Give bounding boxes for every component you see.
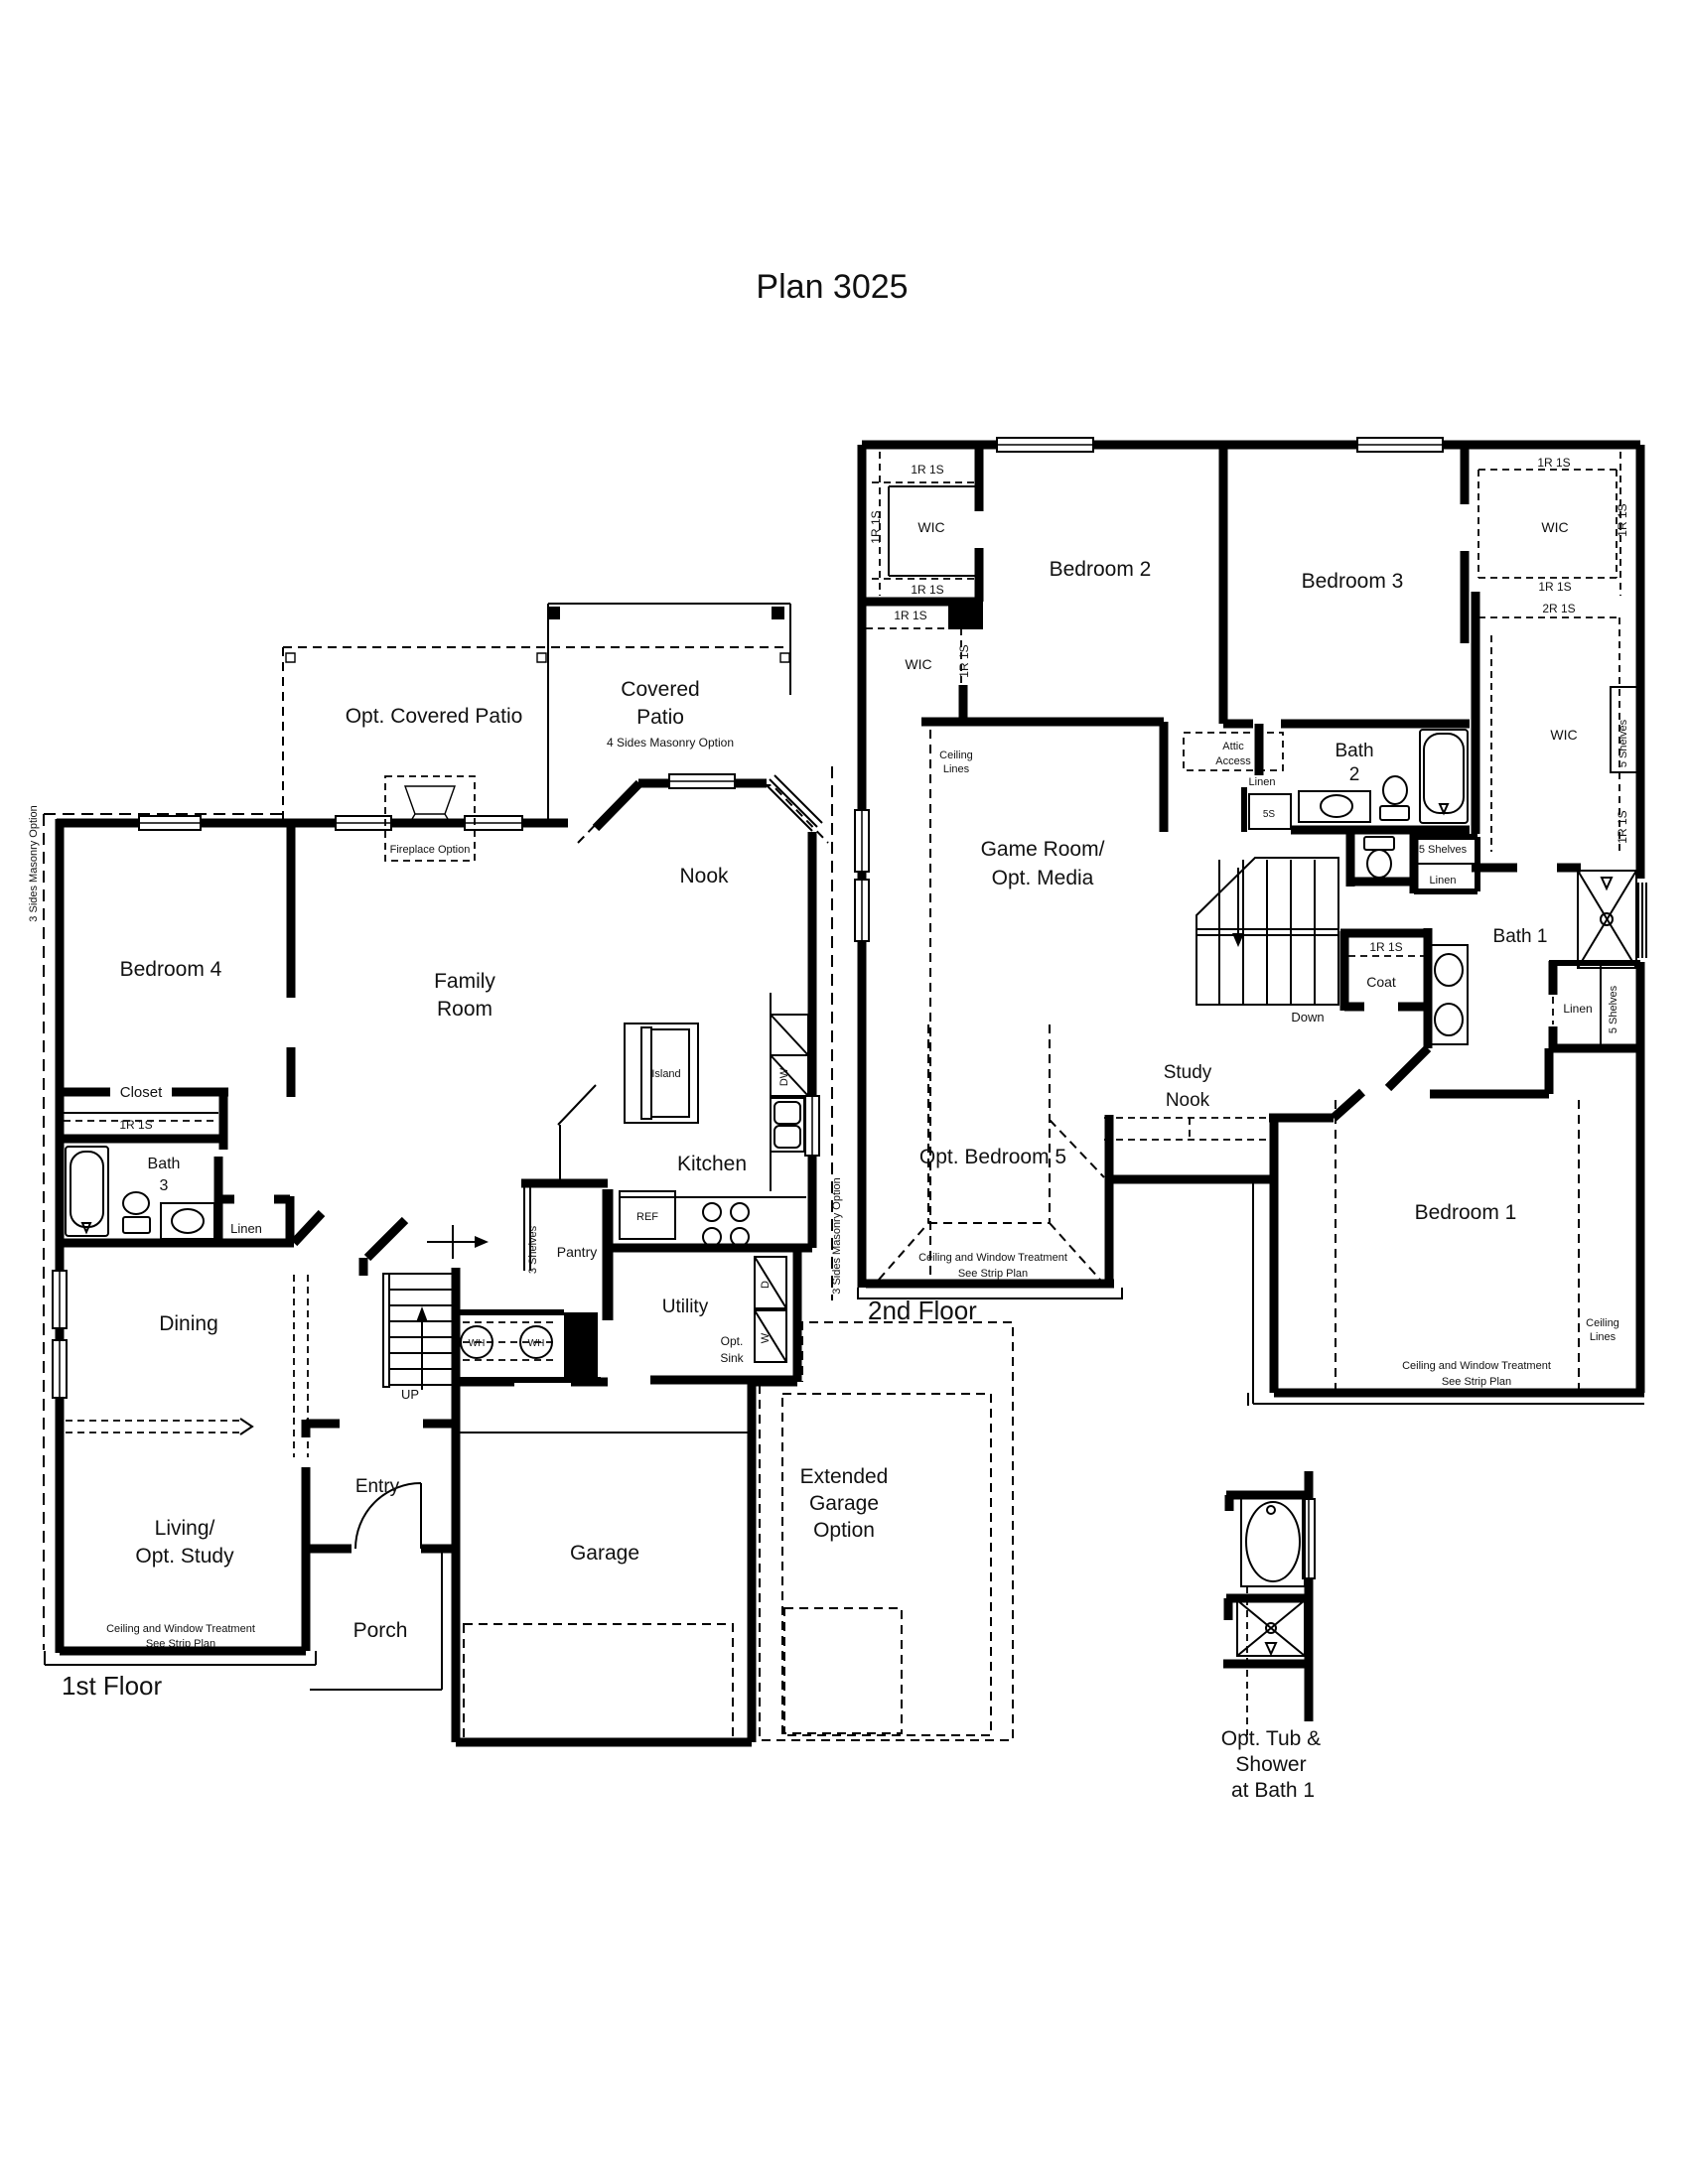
opt-tub-shower-detail: Opt. Tub & Shower at Bath 1 (1221, 1471, 1321, 1802)
vanity-icon (1430, 945, 1468, 1044)
label-bath1: Bath 1 (1493, 926, 1548, 947)
label-closet: Closet (120, 1084, 163, 1101)
label-bedroom-1: Bedroom 1 (1415, 1201, 1517, 1224)
label-bath3-1: Bath (148, 1156, 181, 1172)
utility-washer-dryer (755, 1257, 786, 1362)
dining-niche-arrow-lines (66, 1421, 240, 1433)
label-attic-access-1: Attic (1222, 741, 1244, 752)
label-4-sides-masonry: 4 Sides Masonry Option (607, 736, 734, 750)
label-covered-patio-2: Patio (636, 706, 684, 729)
label-entry: Entry (355, 1476, 400, 1497)
label-1st-floor: 1st Floor (62, 1671, 162, 1701)
bath1-fixtures (1430, 871, 1636, 1044)
tub-surround-icon (1241, 1495, 1305, 1586)
label-nook: Nook (679, 865, 729, 887)
tall-wic-shelf-unit (1414, 687, 1638, 1046)
label-bedroom-4: Bedroom 4 (120, 958, 222, 981)
label-washer: W (760, 1332, 772, 1343)
label-treatment-br5-1: Ceiling and Window Treatment (918, 1252, 1067, 1264)
label-dryer: D (760, 1281, 772, 1289)
label-island: Island (651, 1068, 680, 1080)
stairs-up (383, 1225, 453, 1387)
label-bath3-2: 3 (160, 1177, 169, 1194)
label-wic-4: WIC (1550, 727, 1577, 743)
label-opt-covered-patio: Opt. Covered Patio (346, 705, 523, 728)
kitchen-counters (558, 993, 808, 1246)
patio-post (547, 607, 560, 619)
label-wh-2: WH (528, 1338, 545, 1349)
first-floor-walls (57, 783, 812, 1742)
label-closet-rod: 1R 1S (119, 1118, 152, 1132)
floor-plan-page: Plan 3025 (0, 0, 1688, 2184)
label-treatment-br5-2: See Strip Plan (958, 1268, 1028, 1280)
toilet-icon (1367, 850, 1391, 878)
label-ext-garage-3: Option (813, 1519, 875, 1542)
label-opt-tub-3: at Bath 1 (1231, 1779, 1315, 1802)
label-ceiling-lines-br1-1: Ceiling (1586, 1317, 1619, 1329)
label-ext-garage-2: Garage (809, 1492, 879, 1515)
label-coat: Coat (1366, 974, 1396, 990)
label-living-1: Living/ (155, 1517, 215, 1540)
label-1r1s: 1R 1S (911, 583, 943, 597)
label-fireplace-option: Fireplace Option (390, 844, 471, 856)
label-ref: REF (636, 1211, 658, 1223)
label-linen-stairs: Linen (1249, 776, 1276, 788)
toilet-icon (1383, 776, 1407, 804)
stairs-down (1196, 858, 1338, 1005)
cooktop-icon (703, 1203, 721, 1221)
label-bedroom-2: Bedroom 2 (1050, 558, 1152, 581)
label-ext-garage-1: Extended (800, 1465, 889, 1488)
second-floor: 1R 1S 1R 1S 1R 1S WIC 1R 1S WIC 1R 1S Be… (855, 438, 1646, 1406)
label-5-shelves: 5 Shelves (1618, 719, 1629, 767)
second-floor-strips (858, 1183, 1644, 1406)
label-1r1s: 1R 1S (1537, 456, 1570, 470)
label-1r1s: 1R 1S (1616, 503, 1629, 536)
label-study-nook-1: Study (1164, 1062, 1212, 1083)
label-living-2: Opt. Study (135, 1545, 234, 1568)
label-opt-tub-2: Shower (1235, 1753, 1306, 1776)
label-1r1s: 1R 1S (869, 510, 883, 543)
label-1r1s: 1R 1S (1616, 810, 1629, 843)
label-utility: Utility (662, 1297, 709, 1317)
label-linen-bath1: Linen (1563, 1002, 1592, 1016)
wall-block (948, 600, 983, 629)
label-linen-f1: Linen (230, 1221, 262, 1236)
wall-block (564, 1312, 598, 1378)
label-wh-1: WH (469, 1338, 486, 1349)
label-1r1s: 1R 1S (894, 609, 926, 622)
floor-plan-canvas: Plan 3025 (0, 0, 1688, 2184)
opt-covered-patio-outline (283, 647, 828, 843)
label-garage: Garage (570, 1542, 639, 1565)
label-masonry-right: 3 Sides Masonry Option (831, 1177, 843, 1294)
label-3-shelves: 3 Shelves (527, 1225, 539, 1274)
label-masonry-left: 3 Sides Masonry Option (28, 805, 40, 921)
label-5-shelves-closet: 5 Shelves (1419, 844, 1468, 856)
label-linen-closet: Linen (1430, 875, 1457, 887)
toilet-icon (123, 1192, 149, 1214)
label-dw: DW (778, 1067, 790, 1086)
label-covered-patio-1: Covered (621, 678, 699, 701)
label-game-room-2: Opt. Media (992, 867, 1094, 889)
label-1r1s: 1R 1S (957, 644, 971, 677)
label-bedroom-3: Bedroom 3 (1302, 570, 1404, 593)
label-pantry: Pantry (557, 1244, 597, 1260)
label-1r1s: 1R 1S (1538, 580, 1571, 594)
label-opt-sink-2: Sink (720, 1351, 744, 1365)
label-down: Down (1291, 1010, 1324, 1024)
fireplace-icon (405, 786, 455, 824)
label-5-shelves-bath1: 5 Shelves (1608, 985, 1619, 1033)
label-wic-1: WIC (917, 519, 944, 535)
label-study-nook-2: Nook (1166, 1090, 1210, 1111)
label-family-room-1: Family (434, 970, 495, 993)
label-1r1s-coat: 1R 1S (1369, 940, 1402, 954)
shower-door-icon (1638, 883, 1646, 958)
label-treatment-f1-2: See Strip Plan (146, 1638, 215, 1650)
label-bath2-2: 2 (1349, 764, 1360, 785)
label-2r1s: 2R 1S (1542, 602, 1575, 615)
label-opt-tub-1: Opt. Tub & (1221, 1727, 1321, 1750)
label-treatment-br1-2: See Strip Plan (1442, 1376, 1511, 1388)
label-family-room-2: Room (437, 998, 492, 1021)
label-bath2-1: Bath (1335, 741, 1373, 761)
label-porch: Porch (353, 1619, 408, 1642)
detail-fixtures (1237, 1495, 1305, 1656)
label-opt-sink-1: Opt. (721, 1334, 744, 1348)
patio-corner-ticks (286, 653, 789, 662)
label-wic-3: WIC (1541, 519, 1568, 535)
label-opt-bedroom-5: Opt. Bedroom 5 (919, 1146, 1066, 1168)
detail-walls (1223, 1471, 1309, 1721)
label-game-room-1: Game Room/ (981, 838, 1105, 861)
plan-title: Plan 3025 (756, 268, 908, 306)
label-5s: 5S (1263, 809, 1276, 820)
dining-niche-arrowhead (240, 1419, 252, 1434)
label-treatment-br1-1: Ceiling and Window Treatment (1402, 1360, 1551, 1372)
patio-post (772, 607, 784, 619)
label-ceiling-lines-game-1: Ceiling (939, 750, 973, 761)
study-nook-desk (1104, 1118, 1271, 1140)
garage-dashed-areas (464, 1322, 1013, 1740)
label-up: UP (401, 1387, 419, 1402)
label-1r1s: 1R 1S (911, 463, 943, 477)
bathtub-icon (1420, 730, 1468, 823)
label-ceiling-lines-br1-2: Lines (1590, 1331, 1617, 1343)
sliding-door-icon (765, 775, 822, 831)
label-dining: Dining (159, 1312, 218, 1335)
label-wic-2: WIC (905, 656, 931, 672)
label-ceiling-lines-game-2: Lines (943, 763, 970, 775)
label-2nd-floor: 2nd Floor (868, 1296, 977, 1325)
label-attic-access-2: Access (1215, 755, 1251, 767)
bath3-fixtures (66, 1147, 214, 1239)
label-kitchen: Kitchen (677, 1153, 747, 1175)
label-treatment-f1-1: Ceiling and Window Treatment (106, 1623, 255, 1635)
